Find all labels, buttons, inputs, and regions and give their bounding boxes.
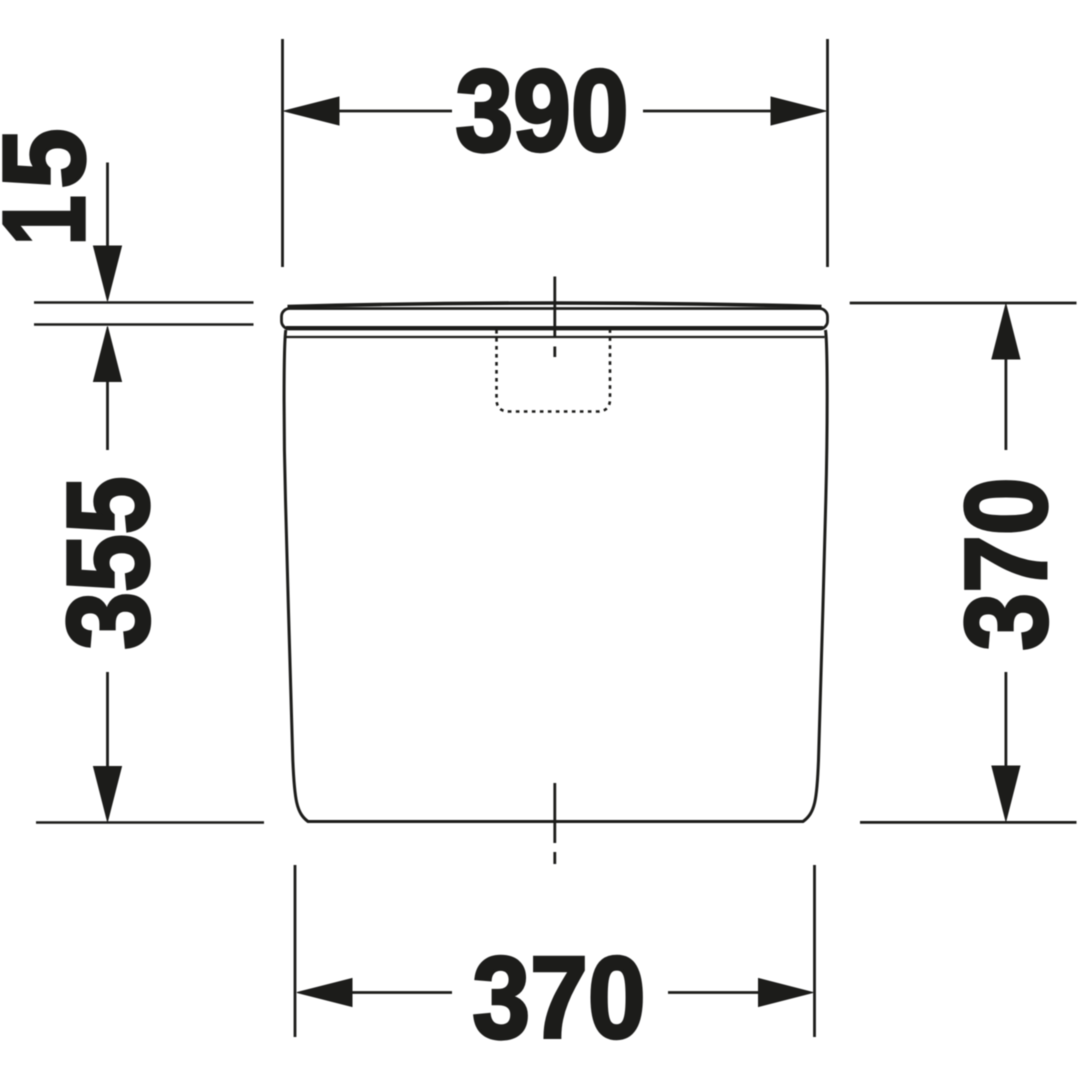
- svg-text:370: 370: [472, 933, 645, 1063]
- svg-text:355: 355: [44, 476, 174, 649]
- svg-text:1: 1: [0, 195, 110, 245]
- svg-text:370: 370: [942, 477, 1072, 650]
- svg-text:390: 390: [455, 46, 628, 176]
- svg-text:5: 5: [0, 129, 109, 189]
